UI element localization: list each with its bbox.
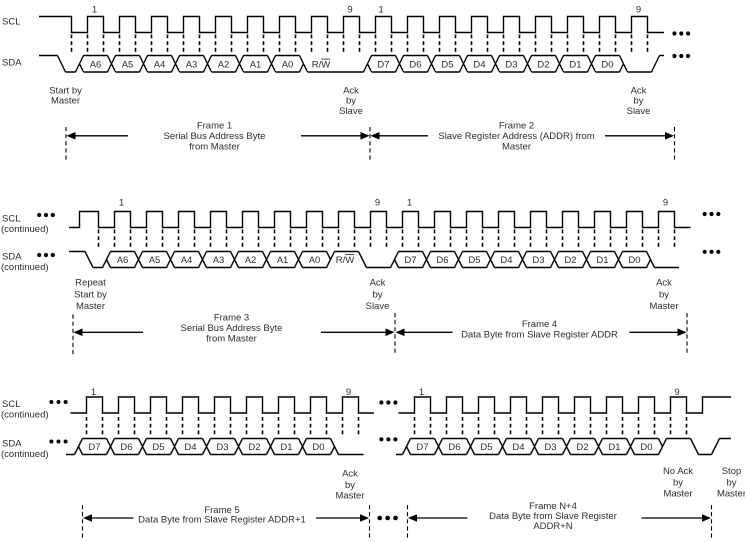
svg-text:R/W: R/W (336, 255, 355, 266)
svg-text:9: 9 (347, 5, 352, 16)
svg-text:Frame 2: Frame 2 (499, 121, 534, 132)
svg-text:D5: D5 (468, 255, 480, 266)
svg-text:D2: D2 (537, 59, 549, 70)
svg-text:A3: A3 (213, 255, 225, 266)
svg-text:A6: A6 (117, 255, 129, 266)
svg-text:SCL: SCL (2, 17, 20, 28)
svg-text:D1: D1 (569, 59, 581, 70)
svg-text:Slave: Slave (339, 106, 363, 117)
svg-text:D1: D1 (280, 442, 292, 453)
svg-text:D7: D7 (88, 442, 100, 453)
svg-text:A1: A1 (277, 255, 289, 266)
svg-text:Ack: Ack (656, 278, 672, 289)
svg-text:A5: A5 (149, 255, 161, 266)
svg-text:Master: Master (76, 301, 105, 312)
svg-text:D4: D4 (500, 255, 512, 266)
svg-text:1: 1 (419, 387, 424, 398)
svg-text:Master: Master (502, 141, 531, 152)
svg-text:1: 1 (92, 5, 97, 16)
svg-text:from Master: from Master (206, 334, 257, 345)
svg-text:D3: D3 (544, 442, 556, 453)
svg-text:by: by (659, 290, 669, 301)
svg-text:Frame 4: Frame 4 (522, 319, 557, 330)
svg-text:A1: A1 (250, 59, 262, 70)
svg-text:9: 9 (375, 198, 380, 209)
svg-text:ADDR+N: ADDR+N (533, 521, 572, 532)
svg-text:Start by: Start by (74, 290, 107, 301)
svg-text:No Ack: No Ack (663, 466, 693, 477)
svg-text:D6: D6 (120, 442, 132, 453)
svg-text:A5: A5 (122, 59, 134, 70)
svg-text:Stop: Stop (722, 466, 742, 477)
svg-text:A4: A4 (154, 59, 166, 70)
svg-text:D7: D7 (416, 442, 428, 453)
svg-text:by: by (345, 480, 355, 491)
svg-text:D6: D6 (409, 59, 421, 70)
svg-text:by: by (726, 478, 736, 489)
svg-text:(continued): (continued) (1, 224, 49, 235)
svg-text:D5: D5 (441, 59, 453, 70)
svg-text:Data Byte from Slave Register: Data Byte from Slave Register ADDR (461, 329, 618, 340)
svg-text:D2: D2 (576, 442, 588, 453)
svg-text:A3: A3 (186, 59, 198, 70)
svg-text:D3: D3 (532, 255, 544, 266)
svg-text:from Master: from Master (189, 141, 240, 152)
svg-text:R/W: R/W (312, 59, 331, 70)
svg-text:D0: D0 (312, 442, 324, 453)
svg-text:D2: D2 (248, 442, 260, 453)
svg-text:D4: D4 (473, 59, 485, 70)
svg-text:A0: A0 (309, 255, 321, 266)
svg-text:A6: A6 (90, 59, 102, 70)
svg-text:D5: D5 (152, 442, 164, 453)
svg-text:A2: A2 (218, 59, 230, 70)
svg-text:D4: D4 (512, 442, 524, 453)
svg-text:D0: D0 (601, 59, 613, 70)
svg-text:Master: Master (717, 489, 745, 500)
svg-text:D4: D4 (184, 442, 196, 453)
svg-text:1: 1 (378, 5, 383, 16)
svg-text:A4: A4 (181, 255, 193, 266)
svg-text:D5: D5 (480, 442, 492, 453)
svg-text:Master: Master (51, 96, 80, 107)
svg-text:D7: D7 (404, 255, 416, 266)
svg-text:D1: D1 (608, 442, 620, 453)
svg-text:D3: D3 (505, 59, 517, 70)
svg-text:Frame 3: Frame 3 (214, 313, 249, 324)
svg-text:Master: Master (649, 301, 678, 312)
svg-text:D6: D6 (436, 255, 448, 266)
svg-text:Ack: Ack (342, 469, 358, 480)
svg-text:1: 1 (119, 198, 124, 209)
svg-text:A2: A2 (245, 255, 257, 266)
svg-text:1: 1 (407, 198, 412, 209)
svg-text:Repeat: Repeat (75, 278, 106, 289)
svg-text:Frame 1: Frame 1 (197, 121, 232, 132)
svg-text:A0: A0 (282, 59, 294, 70)
svg-text:(continued): (continued) (1, 409, 49, 420)
svg-text:D0: D0 (640, 442, 652, 453)
svg-text:by: by (673, 478, 683, 489)
svg-text:SDA: SDA (2, 58, 22, 69)
svg-text:9: 9 (636, 5, 641, 16)
svg-text:Master: Master (663, 489, 692, 500)
svg-text:9: 9 (346, 387, 351, 398)
svg-text:9: 9 (663, 198, 668, 209)
svg-text:D2: D2 (564, 255, 576, 266)
svg-text:Master: Master (335, 491, 364, 502)
svg-text:Slave: Slave (366, 301, 390, 312)
svg-text:D6: D6 (448, 442, 460, 453)
svg-text:D0: D0 (628, 255, 640, 266)
svg-text:Slave: Slave (627, 106, 651, 117)
svg-text:by: by (372, 290, 382, 301)
svg-text:D1: D1 (596, 255, 608, 266)
svg-text:D7: D7 (377, 59, 389, 70)
svg-text:1: 1 (91, 387, 96, 398)
svg-text:9: 9 (674, 387, 679, 398)
svg-text:Data Byte from Slave Register: Data Byte from Slave Register ADDR+1 (138, 514, 306, 525)
svg-text:D3: D3 (216, 442, 228, 453)
svg-text:Ack: Ack (370, 278, 386, 289)
svg-text:(continued): (continued) (1, 262, 49, 273)
svg-text:(continued): (continued) (1, 449, 49, 460)
